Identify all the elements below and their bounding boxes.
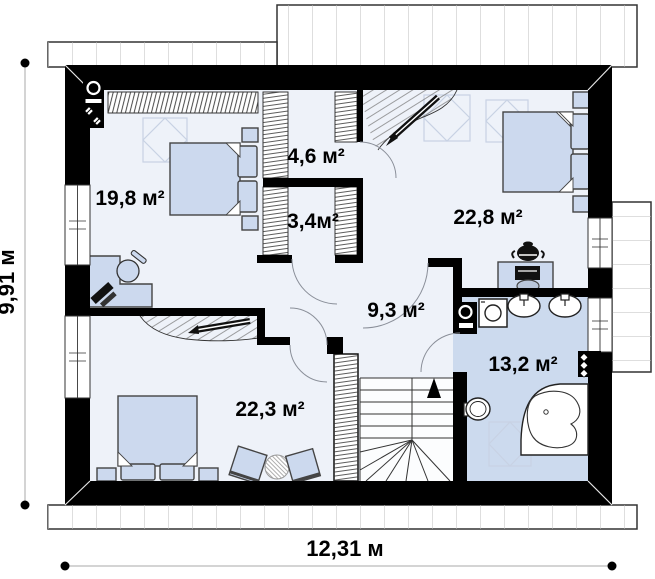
dimension-width: 12,31 м bbox=[61, 536, 617, 571]
room-label-closet-middle: 3,4м² bbox=[287, 210, 339, 233]
sink-icon bbox=[549, 294, 581, 317]
dimension-height-label: 9,91 м bbox=[0, 249, 19, 314]
dimension-height: 9,91 м bbox=[0, 59, 30, 510]
washing-machine-icon bbox=[479, 299, 507, 327]
room-label-bedroom-bottom-left: 22,3 м² bbox=[235, 398, 304, 421]
window-icon bbox=[65, 316, 90, 398]
room-label-bedroom-top-right: 22,8 м² bbox=[453, 206, 522, 229]
wardrobe-icon bbox=[263, 92, 288, 178]
floor-plan-drawing: 19,8 м² 4,6 м² 3,4м² 22,8 м² 9,3 м² 22,3… bbox=[0, 0, 655, 579]
vent-stack-icon bbox=[578, 351, 601, 377]
room-label-hall: 9,3 м² bbox=[367, 299, 425, 322]
chimney-icon bbox=[83, 75, 104, 128]
sink-icon bbox=[508, 294, 540, 317]
room-label-bedroom-top-left: 19,8 м² bbox=[95, 187, 164, 210]
window-icon bbox=[588, 218, 612, 268]
wardrobe-icon bbox=[108, 92, 258, 113]
window-icon bbox=[65, 185, 90, 265]
stairs-icon bbox=[360, 378, 453, 481]
floor-plan-page: 19,8 м² 4,6 м² 3,4м² 22,8 м² 9,3 м² 22,3… bbox=[0, 0, 655, 579]
room-label-bathroom: 13,2 м² bbox=[488, 353, 557, 376]
wardrobe-icon bbox=[334, 354, 358, 481]
wardrobe-icon bbox=[263, 187, 288, 255]
toilet-icon bbox=[455, 396, 490, 422]
dimension-width-label: 12,31 м bbox=[306, 536, 383, 561]
window-icon bbox=[588, 298, 612, 352]
room-label-closet-top: 4,6 м² bbox=[287, 145, 345, 168]
wardrobe-icon bbox=[335, 92, 357, 142]
boiler-icon bbox=[454, 302, 477, 334]
